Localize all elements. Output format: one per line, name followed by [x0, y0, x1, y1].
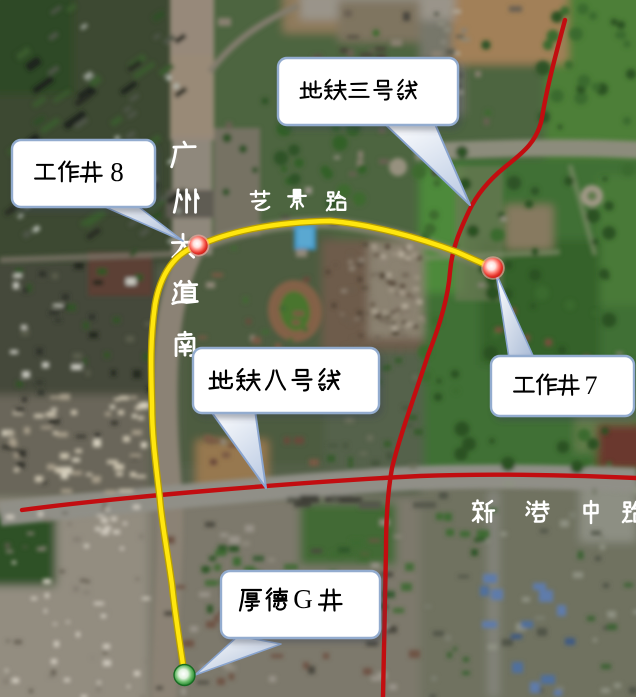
- svg-text:G: G: [293, 584, 313, 614]
- svg-text:8: 8: [110, 157, 124, 187]
- svg-text:7: 7: [585, 371, 598, 400]
